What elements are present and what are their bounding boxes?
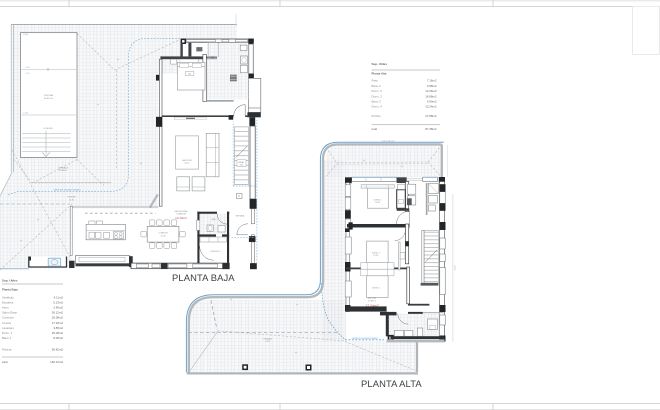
svg-text:7.16m2: 7.16m2 — [427, 79, 437, 83]
svg-text:Planta Baja: Planta Baja — [2, 287, 18, 291]
svg-text:87.38m2: 87.38m2 — [425, 127, 437, 131]
svg-text:4.90m2: 4.90m2 — [427, 100, 437, 104]
svg-text:Planta Alta: Planta Alta — [372, 72, 387, 76]
svg-text:ESCALERA: ESCALERA — [43, 127, 53, 130]
svg-text:Porche: Porche — [372, 114, 382, 118]
svg-text:TERRAZA: TERRAZA — [263, 338, 272, 341]
svg-text:Paso: Paso — [372, 79, 379, 83]
svg-text:+1.20: +1.20 — [25, 73, 29, 75]
svg-text:25.08m2: 25.08m2 — [52, 331, 64, 335]
svg-text:36.12: 36.12 — [185, 163, 190, 165]
svg-text:Sup. Utiles: Sup. Utiles — [2, 279, 18, 283]
svg-text:20.08m2: 20.08m2 — [52, 316, 64, 320]
svg-text:2.90m2: 2.90m2 — [53, 306, 63, 310]
svg-text:Dorm. 3: Dorm. 3 — [372, 89, 383, 93]
svg-text:56.82 m2: 56.82 m2 — [44, 98, 54, 100]
svg-text:20.08: 20.08 — [161, 235, 166, 237]
svg-text:5.23: 5.23 — [240, 164, 243, 166]
svg-text:27.88m2: 27.88m2 — [425, 114, 437, 118]
svg-text:Dorm. 1: Dorm. 1 — [2, 331, 13, 335]
svg-text:Dorm. 2: Dorm. 2 — [372, 94, 383, 98]
svg-text:PORCHE: PORCHE — [67, 197, 76, 199]
svg-text:12.40: 12.40 — [455, 265, 457, 271]
svg-text:+1.20m: +1.20m — [23, 113, 29, 115]
svg-text:150: 150 — [188, 74, 191, 76]
svg-text:ASEO: ASEO — [212, 218, 218, 221]
svg-text:TERRAZA: TERRAZA — [58, 166, 68, 169]
svg-text:16.68: 16.68 — [375, 202, 380, 204]
svg-text:56.82m2: 56.82m2 — [52, 348, 64, 352]
svg-text:Aseo: Aseo — [2, 306, 9, 310]
svg-text:Salon Estar: Salon Estar — [2, 311, 17, 315]
svg-text:PLANTA ALTA: PLANTA ALTA — [361, 378, 422, 389]
svg-text:Sup. Utiles: Sup. Utiles — [372, 62, 388, 66]
svg-text:Bano 2: Bano 2 — [372, 84, 382, 88]
svg-text:160.12m2: 160.12m2 — [50, 360, 63, 364]
svg-text:13.10m2: 13.10m2 — [175, 216, 187, 220]
svg-text:36.12m2: 36.12m2 — [52, 311, 64, 315]
svg-text:16.68m2: 16.68m2 — [425, 94, 437, 98]
svg-text:DORM. 4: DORM. 4 — [368, 301, 376, 303]
svg-text:4.11m2: 4.11m2 — [54, 295, 64, 299]
svg-text:12.24m2: 12.24m2 — [425, 105, 437, 109]
svg-text:Dorm. 4: Dorm. 4 — [372, 105, 383, 109]
svg-text:Bano 1: Bano 1 — [2, 336, 12, 340]
svg-text:3.85m2: 3.85m2 — [53, 326, 63, 330]
svg-text:Escalera: Escalera — [2, 300, 14, 304]
svg-text:3.98m2: 3.98m2 — [427, 84, 437, 88]
svg-text:VESTIBULO: VESTIBULO — [210, 251, 221, 253]
svg-text:SALON M2: SALON M2 — [182, 159, 192, 162]
svg-text:PLANTA BAJA: PLANTA BAJA — [172, 272, 235, 283]
svg-text:Piscina: Piscina — [2, 348, 12, 352]
svg-text:PISCINA: PISCINA — [44, 94, 53, 97]
svg-text:12.70: 12.70 — [69, 199, 74, 201]
svg-text:Lavadero: Lavadero — [2, 326, 14, 330]
svg-text:DORM. 4: DORM. 4 — [372, 288, 380, 290]
svg-text:12.26: 12.26 — [373, 255, 378, 257]
svg-text:Bano 3: Bano 3 — [372, 100, 382, 104]
svg-text:Cocina: Cocina — [2, 321, 11, 325]
svg-text:total: total — [2, 360, 8, 364]
svg-text:27.88: 27.88 — [265, 341, 270, 343]
svg-text:total: total — [372, 127, 378, 131]
svg-text:8.05m2: 8.05m2 — [53, 336, 63, 340]
svg-text:17.18m2: 17.18m2 — [52, 321, 64, 325]
svg-text:COMEDOR: COMEDOR — [158, 233, 168, 235]
svg-text:+1.40: +1.40 — [25, 67, 29, 69]
svg-text:5.23m2: 5.23m2 — [53, 300, 63, 304]
svg-text:Vestibulo: Vestibulo — [2, 295, 14, 299]
svg-text:12.26m2: 12.26m2 — [425, 89, 437, 93]
svg-text:38.40m2: 38.40m2 — [59, 170, 68, 172]
svg-text:+1.40m: +1.40m — [23, 34, 29, 36]
svg-text:LIMITE EXT. BORDE FORJADO: LIMITE EXT. BORDE FORJADO — [53, 188, 81, 191]
svg-text:LIMITE EXT. BORDE FORJADO: LIMITE EXT. BORDE FORJADO — [352, 337, 379, 340]
svg-text:Comedor: Comedor — [2, 316, 14, 320]
svg-text:ENTRADA: ENTRADA — [236, 215, 245, 218]
